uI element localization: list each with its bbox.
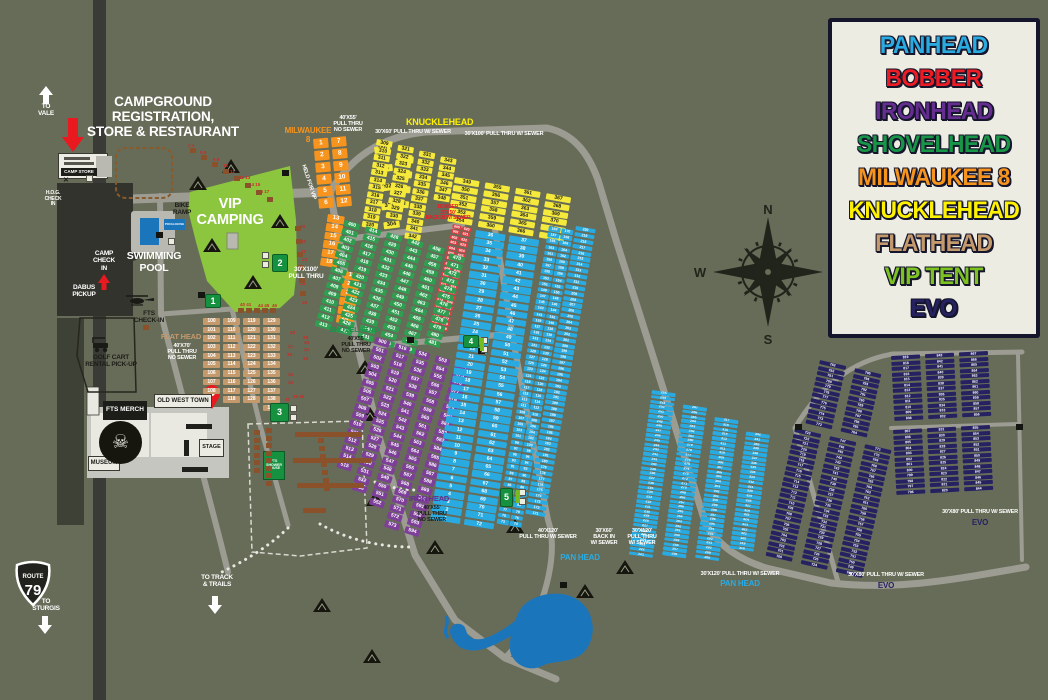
label-evo: EVO: [862, 582, 910, 591]
label-to-track-trails: TO TRACK & TRAILS: [196, 574, 238, 589]
label-knucklehead: KNUCKLEHEAD: [406, 117, 472, 127]
label-evo: 30'X80' PULL THRU W/ SEWER: [932, 509, 1028, 515]
label-knucklehead: 30'X60' PULL THRU W/ SEWER: [368, 129, 458, 135]
legend-item-evo: EVO: [911, 295, 958, 323]
legend: PANHEADBOBBERIRONHEADSHOVELHEADMILWAUKEE…: [828, 18, 1040, 338]
label-flathead: FLAT HEAD: [157, 333, 205, 341]
legend-item-shovelhead: SHOVELHEAD: [857, 131, 1011, 159]
label-shovelhead: SHOVELHEAD: [326, 326, 382, 334]
label-panhead: PAN HEAD: [552, 554, 608, 563]
label-dabus-pickup: DABUS PICKUP: [70, 284, 98, 299]
label-camp-check-in: CAMP CHECK IN: [90, 250, 118, 272]
label-evo: EVO: [956, 519, 1004, 528]
label-knucklehead: 30'X100' PULL THRU W/ SEWER: [458, 131, 550, 137]
campground-map: N S W E ROUTE 79: [0, 0, 1048, 700]
label-panhead: 40'X120' PULL THRU W/ SEWER: [512, 528, 584, 540]
label-milwaukee8: 30'X100' PULL THRU: [288, 266, 324, 281]
legend-item-bobber: BOBBER: [886, 65, 982, 93]
legend-item-vip-tent: VIP TENT: [885, 263, 983, 291]
label-shovelhead: 40'X55' PULL THRU NO SEWER: [338, 336, 374, 354]
label-fts-check-in: FTS CHECK-IN: [131, 310, 167, 325]
legend-item-ironhead: IRONHEAD: [875, 98, 993, 126]
label-knucklehead: 40'X55' PULL THRU NO SEWER: [330, 115, 366, 133]
label-bike-ramp: BIKE RAMP: [168, 202, 196, 217]
label-bobber: BOBBER 25'X50' BACK IN W/ SEWER: [425, 205, 471, 222]
label-ironhead: 40'X55' PULL THRU NO SEWER: [414, 505, 450, 523]
label-registration-title: CAMPGROUND REGISTRATION, STORE & RESTAUR…: [64, 94, 262, 139]
label-panhead: 30'X120' PULL THRU W/ SEWER: [690, 571, 790, 577]
legend-item-flathead: FLATHEAD: [875, 230, 992, 258]
label-hog-check-in: H.O.G. CHECK IN: [43, 191, 63, 208]
legend-item-milwaukee-8: MILWAUKEE 8: [858, 164, 1010, 192]
legend-item-knucklehead: KNUCKLEHEAD: [849, 197, 1020, 225]
label-to-vale: TO VALE: [33, 103, 59, 118]
label-to-sturgis: TO STURGIS: [29, 598, 63, 613]
label-vip-camping: VIP CAMPING: [194, 196, 266, 228]
legend-item-panhead: PANHEAD: [880, 32, 988, 60]
label-panhead: 30'X120' PULL THRU W/ SEWER: [624, 528, 660, 546]
label-evo: 30'X80' PULL THRU W/ SEWER: [838, 572, 934, 578]
label-milwaukee8: MILWAUKEE 8: [283, 127, 333, 145]
label-panhead: PAN HEAD: [712, 580, 768, 589]
label-panhead: 30'X60' BACK IN W/ SEWER: [588, 528, 620, 546]
label-flathead: 40'X70' PULL THRU NO SEWER: [164, 343, 200, 361]
label-ironhead: IRON HEAD: [404, 495, 454, 503]
label-milwaukee8: HELD FOR VIP: [300, 164, 317, 200]
label-golf-cart-rental: GOLF CART RENTAL PICK-UP: [82, 354, 140, 369]
label-swimming-pool: SWIMMING POOL: [122, 251, 186, 275]
